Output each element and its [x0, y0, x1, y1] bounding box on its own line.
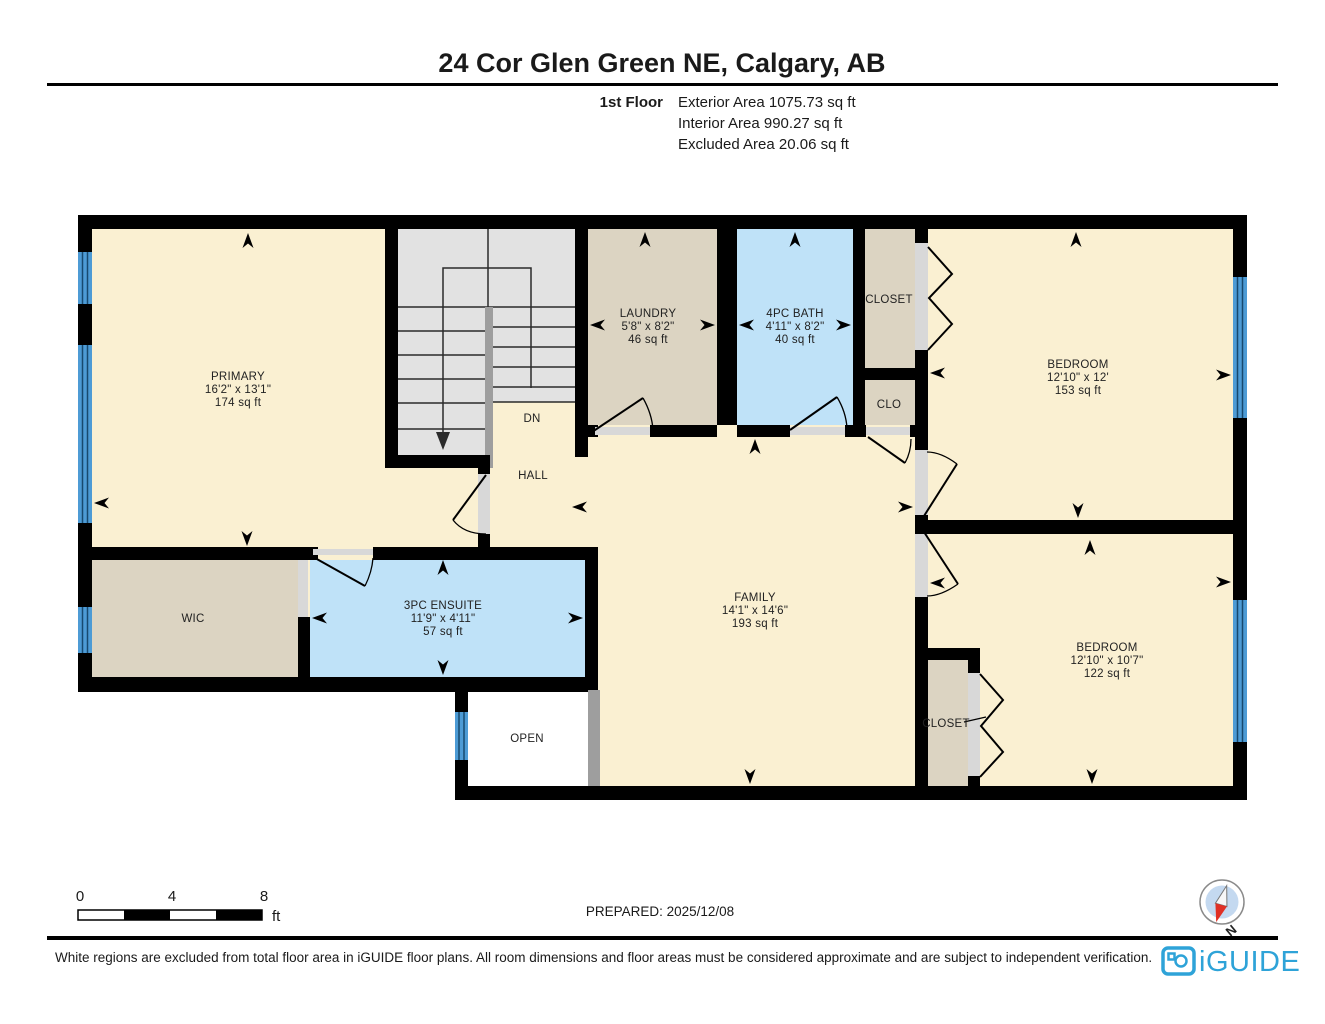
room-label-wic: WIC [181, 613, 204, 625]
svg-text:11'9" x 4'11": 11'9" x 4'11" [411, 613, 476, 625]
svg-text:BEDROOM: BEDROOM [1047, 359, 1108, 371]
room-label-clo: CLO [877, 399, 901, 411]
window [1233, 600, 1247, 742]
svg-text:12'10" x 10'7": 12'10" x 10'7" [1071, 655, 1144, 667]
footer-divider [47, 936, 1278, 940]
scale-bar-segment [124, 910, 170, 920]
scale-tick-0: 0 [76, 888, 84, 905]
scale-tick-4: 4 [168, 888, 176, 905]
svg-text:BEDROOM: BEDROOM [1076, 642, 1137, 654]
footer: White regions are excluded from total fl… [47, 936, 1300, 978]
svg-text:5'8" x 8'2": 5'8" x 8'2" [621, 321, 674, 333]
svg-text:FAMILY: FAMILY [734, 592, 776, 604]
room-label-closet-top: CLOSET [865, 294, 913, 306]
footer-disclaimer: White regions are excluded from total fl… [55, 950, 1152, 965]
room-label-hall: HALL [518, 470, 548, 482]
iguide-camera-icon [1163, 948, 1194, 974]
svg-text:4'11" x 8'2": 4'11" x 8'2" [766, 321, 825, 333]
header: 24 Cor Glen Green NE, Calgary, AB 1st Fl… [47, 48, 1278, 153]
compass: N [1200, 880, 1244, 939]
prepared-date: PREPARED: 2025/12/08 [586, 904, 734, 919]
svg-text:193 sq ft: 193 sq ft [732, 618, 779, 630]
window [1233, 277, 1247, 418]
room-label-bedroom-ne: BEDROOM 12'10" x 12' 153 sq ft [1047, 359, 1109, 397]
room-label-closet-bottom: CLOSET [922, 718, 970, 730]
svg-text:14'1" x 14'6": 14'1" x 14'6" [722, 605, 788, 617]
stairs-down-label: DN [523, 413, 540, 425]
svg-text:40 sq ft: 40 sq ft [775, 334, 815, 346]
room-label-laundry: LAUNDRY 5'8" x 8'2" 46 sq ft [620, 308, 677, 346]
svg-text:46 sq ft: 46 sq ft [628, 334, 668, 346]
window [78, 345, 92, 523]
scale-bar: 0 4 8 ft [76, 888, 281, 925]
window [455, 712, 468, 760]
open-railing [588, 690, 600, 786]
floor-plan-canvas: 24 Cor Glen Green NE, Calgary, AB 1st Fl… [0, 0, 1325, 1024]
window [78, 607, 92, 653]
scale-bar-segment [216, 910, 262, 920]
page-title: 24 Cor Glen Green NE, Calgary, AB [438, 48, 885, 78]
svg-text:122 sq ft: 122 sq ft [1084, 668, 1131, 680]
svg-text:153 sq ft: 153 sq ft [1055, 385, 1102, 397]
open-label: OPEN [510, 733, 544, 745]
stair-stringer [485, 307, 493, 468]
svg-text:3PC ENSUITE: 3PC ENSUITE [404, 600, 482, 612]
scale-unit: ft [272, 908, 281, 925]
excluded-area-stat: Excluded Area 20.06 sq ft [678, 136, 850, 153]
window [78, 252, 92, 304]
floor-plan-page: 24 Cor Glen Green NE, Calgary, AB 1st Fl… [0, 0, 1325, 1024]
svg-text:LAUNDRY: LAUNDRY [620, 308, 677, 320]
iguide-logo: iGUIDE [1163, 946, 1300, 978]
svg-text:174 sq ft: 174 sq ft [215, 397, 262, 409]
floor-label: 1st Floor [600, 94, 664, 111]
exterior-area-stat: Exterior Area 1075.73 sq ft [678, 94, 856, 111]
interior-area-stat: Interior Area 990.27 sq ft [678, 115, 843, 132]
svg-text:PRIMARY: PRIMARY [211, 371, 265, 383]
svg-text:4PC BATH: 4PC BATH [766, 308, 823, 320]
iguide-wordmark: iGUIDE [1199, 946, 1300, 978]
svg-text:16'2" x 13'1": 16'2" x 13'1" [205, 384, 271, 396]
header-divider [47, 83, 1278, 86]
svg-text:12'10" x 12': 12'10" x 12' [1047, 372, 1109, 384]
scale-tick-8: 8 [260, 888, 268, 905]
svg-text:57 sq ft: 57 sq ft [423, 626, 463, 638]
